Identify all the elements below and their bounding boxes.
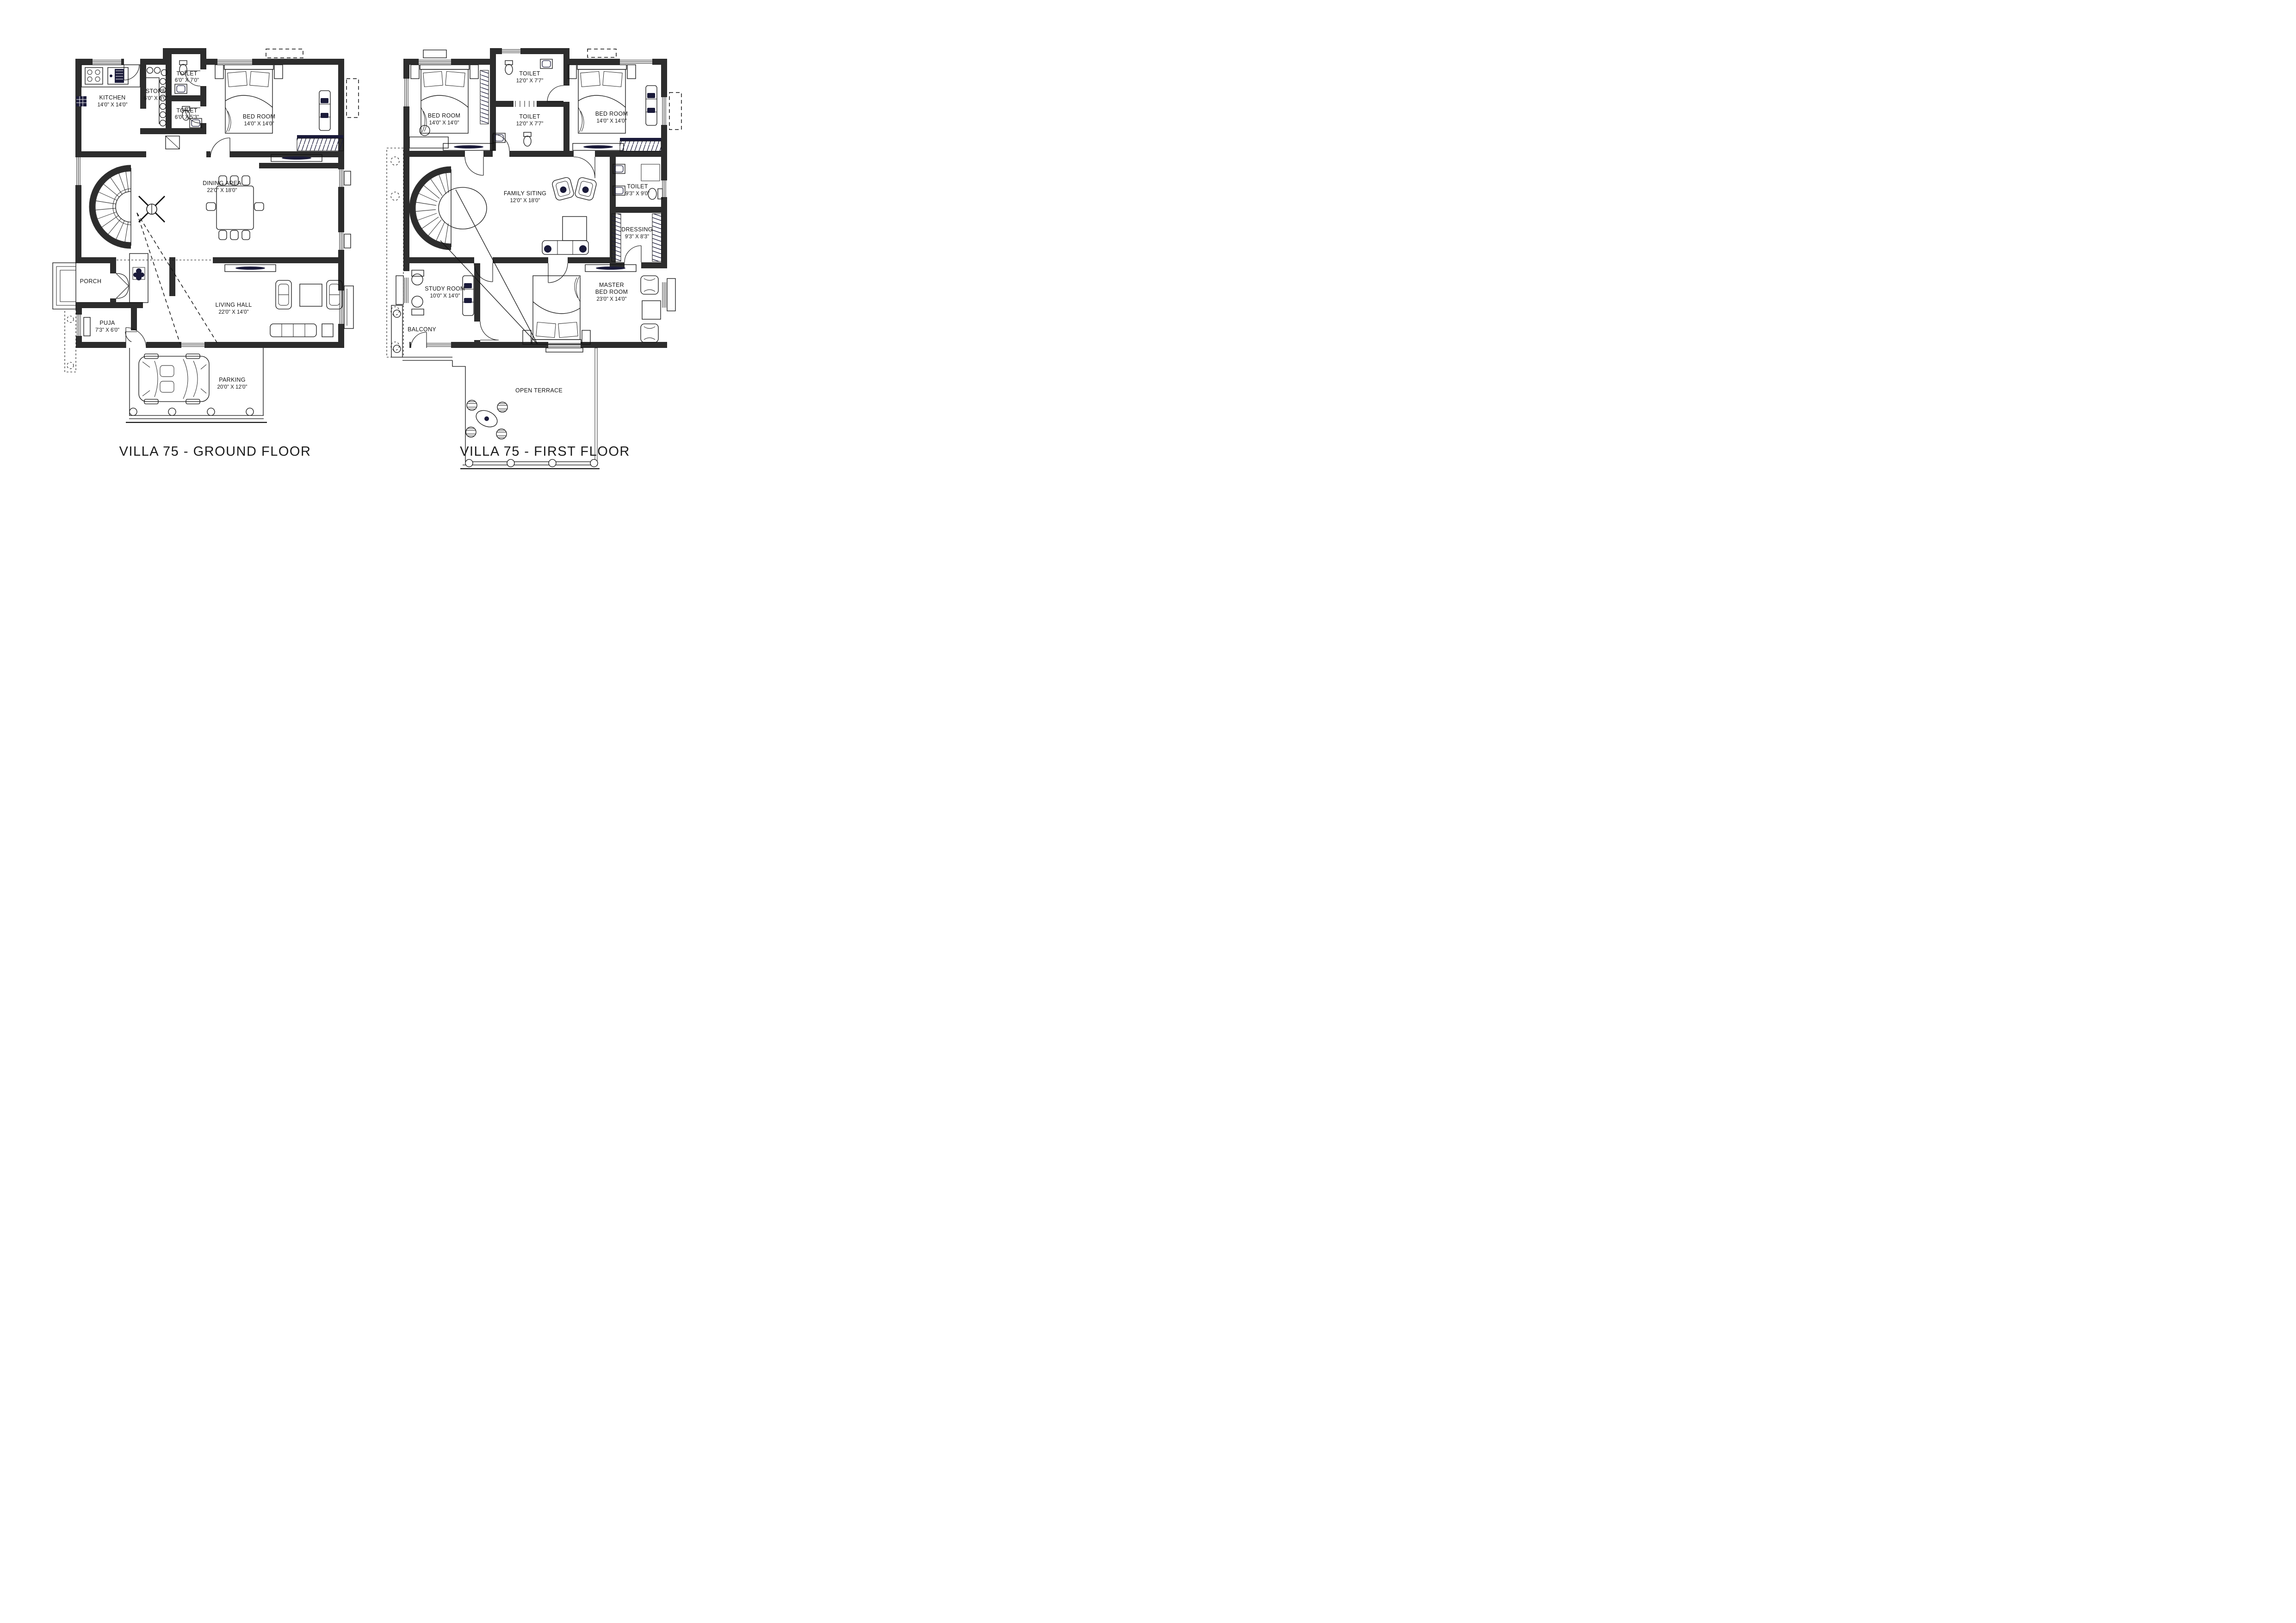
desk — [409, 137, 448, 148]
wardrobe-hatch — [480, 70, 489, 124]
round-chair — [412, 274, 423, 285]
villa-75-floor-plans: KITCHEN 14'0" X 14'0" STORE 6'0" X 8'0" … — [0, 0, 725, 513]
ff-right-bedroom-furniture — [568, 65, 661, 151]
ground-floor-walls — [75, 48, 344, 348]
armchair — [641, 276, 658, 294]
room-dims-bed-room: 14'0" X 14'0" — [244, 121, 274, 127]
projection-dashed-box — [588, 49, 616, 57]
room-label-toilet-top: TOILET — [176, 70, 197, 77]
room-dims-study-room: 10'0" X 14'0" — [430, 293, 460, 299]
room-label-master-line2: BED ROOM — [595, 289, 628, 295]
projection-dashed-box — [669, 93, 681, 130]
plant-box — [130, 254, 148, 303]
puja-fixtures — [84, 317, 90, 336]
room-label-toilet-middle: TOILET — [519, 113, 540, 120]
room-label-parking: PARKING — [219, 377, 245, 383]
tv-console — [225, 265, 276, 272]
wardrobe-hatch — [620, 141, 661, 151]
room-label-living-hall: LIVING HALL — [215, 302, 252, 308]
room-dims-puja: 7'3" X 6'0" — [95, 328, 119, 333]
bedroom-sofa — [319, 91, 330, 130]
room-label-bed-room-left: BED ROOM — [428, 112, 460, 119]
floor-plan-page: KITCHEN 14'0" X 14'0" STORE 6'0" X 8'0" … — [0, 0, 725, 513]
dresser — [573, 143, 624, 150]
wardrobe-hatch — [297, 138, 343, 151]
room-label-bed-room-right: BED ROOM — [595, 111, 628, 117]
first-floor-title: VILLA 75 - FIRST FLOOR — [460, 444, 630, 459]
room-dims-living-hall: 22'0" X 14'0" — [219, 310, 249, 315]
terrace-table-set — [466, 400, 507, 439]
ff-left-bedroom-furniture — [409, 65, 494, 150]
room-dims-parking: 20'0" X 12'0" — [217, 384, 248, 390]
room-label-porch: PORCH — [80, 278, 102, 285]
room-dims-toilet-right: 9'3" X 9'0" — [625, 191, 650, 197]
room-dims-dining: 22'0" X 18'0" — [207, 188, 237, 193]
room-label-store: STORE — [146, 88, 166, 94]
room-label-toilet-bottom: TOILET — [176, 107, 197, 114]
toilet-top-fixtures — [175, 61, 187, 93]
armchair — [574, 177, 597, 201]
bedroom-sofa — [646, 86, 657, 125]
room-label-dining: DINING AREA — [203, 180, 241, 186]
room-label-balcony: BALCONY — [408, 326, 436, 333]
gf-bedroom-furniture — [215, 65, 343, 161]
room-dims-dressing: 9'3" X 8'3" — [625, 234, 649, 240]
room-label-study-room: STUDY ROOM — [425, 285, 465, 292]
room-dims-toilet-bottom: 6'0" X 5'3" — [175, 115, 199, 120]
room-label-family-sitting: FAMILY SITING — [504, 190, 546, 197]
room-dims-master: 23'0" X 14'0" — [597, 297, 627, 302]
master-bedroom-furniture — [523, 265, 661, 344]
room-dims-toilet-top: 6'0" X 7'0" — [175, 78, 199, 83]
projection-dashed-box — [266, 49, 303, 58]
double-bed — [523, 276, 590, 344]
projection-dashed-box — [347, 79, 359, 118]
corner-table — [642, 301, 661, 319]
study-couch — [463, 276, 474, 316]
round-chair — [412, 296, 423, 307]
ground-floor-plan: KITCHEN 14'0" X 14'0" STORE 6'0" X 8'0" … — [53, 48, 359, 422]
room-label-puja: PUJA — [99, 320, 115, 326]
armchair — [641, 324, 658, 342]
room-label-open-terrace: OPEN TERRACE — [515, 387, 563, 394]
room-label-dressing: DRESSING — [621, 226, 653, 233]
family-sitting-furniture — [542, 177, 597, 254]
ceiling-fan-icon — [139, 196, 165, 222]
room-dims-store: 6'0" X 8'0" — [144, 96, 168, 101]
stair-direction-line — [137, 213, 217, 343]
room-dims-bed-room-right: 14'0" X 14'0" — [597, 118, 627, 124]
armchair — [551, 177, 575, 201]
first-floor-plan: BED ROOM 14'0" X 14'0" TOILET 12'0" X 7'… — [387, 48, 681, 469]
room-dims-toilet-middle: 12'0" X 7'7" — [516, 121, 544, 127]
side-table — [322, 324, 333, 337]
room-label-master-line1: MASTER — [599, 282, 624, 288]
room-dims-bed-room-left: 14'0" X 14'0" — [429, 120, 459, 126]
ff-toilet-middle-fixtures — [493, 132, 531, 146]
room-dims-kitchen: 14'0" X 14'0" — [98, 102, 128, 108]
car — [139, 354, 209, 404]
living-hall-furniture — [225, 265, 342, 337]
kitchen-fixtures — [76, 65, 179, 149]
center-table — [300, 284, 322, 306]
room-dims-toilet-top: 12'0" X 7'7" — [516, 78, 544, 84]
dresser — [443, 143, 494, 150]
ground-floor-title: VILLA 75 - GROUND FLOOR — [119, 444, 311, 459]
porch-steps — [53, 263, 76, 372]
room-label-toilet-right: TOILET — [627, 183, 648, 190]
room-label-kitchen: KITCHEN — [99, 94, 126, 101]
center-table — [563, 217, 587, 241]
armchair — [276, 280, 291, 309]
ff-dashed-strip — [387, 148, 403, 357]
room-dims-family-sitting: 12'0" X 18'0" — [510, 198, 540, 204]
room-label-bed-room: BED ROOM — [243, 113, 275, 120]
wall-vent-grid — [76, 96, 87, 106]
room-label-toilet-top: TOILET — [519, 70, 540, 77]
study-room-furniture — [412, 270, 474, 316]
spiral-staircase — [92, 168, 217, 345]
